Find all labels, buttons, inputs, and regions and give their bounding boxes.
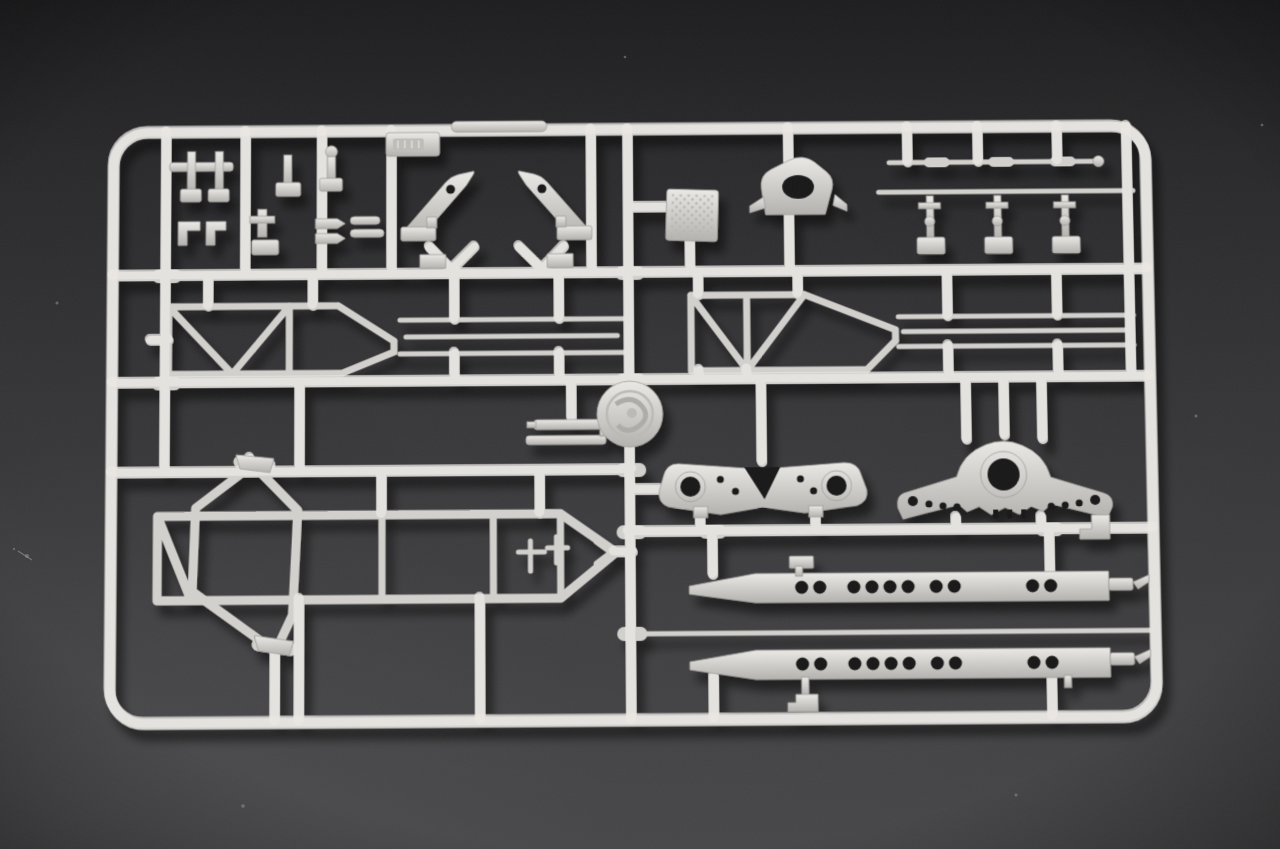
truss-frame-left (168, 305, 394, 374)
linkage-row (916, 195, 1080, 254)
claw-base-blocks (420, 254, 573, 269)
label-tab (386, 132, 440, 156)
trail-rungs (382, 516, 561, 598)
side-plate-lower (690, 647, 1151, 680)
side-plate-upper (689, 571, 1149, 603)
truss-frame-right (691, 294, 896, 371)
towing-bracket (749, 157, 847, 215)
top-edge-bar (451, 121, 546, 132)
sprue (109, 117, 1158, 725)
maker-medallion (597, 381, 663, 447)
claw-lever-right (518, 170, 592, 240)
claw-lever-left (401, 171, 474, 241)
equalizer-beam (659, 462, 867, 518)
sprue-photo: Plastic model kit sprue - silver-gray in… (0, 1, 1280, 849)
photo-stage: dark charcoal flocked textured surface w… (0, 0, 1280, 849)
bracket-cluster (169, 146, 384, 256)
trail-frame (157, 513, 615, 601)
axle-rod-endcap (1093, 156, 1104, 167)
hex-ring (192, 464, 298, 652)
tread-plate (666, 189, 719, 242)
